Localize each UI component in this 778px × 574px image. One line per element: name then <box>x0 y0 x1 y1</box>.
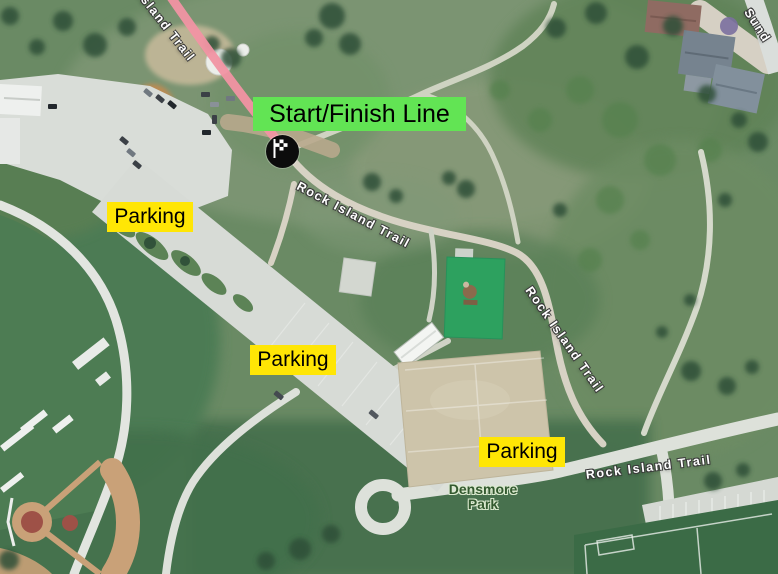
concrete-pad <box>339 258 375 296</box>
park-name-line1: Densmore <box>438 482 528 497</box>
park-name-label: Densmore Park <box>438 482 528 512</box>
parking-label-central: Parking <box>250 345 336 375</box>
map-canvas[interactable]: Rock Island Trail Rock Island Trail Rock… <box>0 0 778 574</box>
parking-label-north: Parking <box>107 202 193 232</box>
satellite-imagery <box>0 0 778 574</box>
park-name-line2: Park <box>438 497 528 512</box>
parking-label-south: Parking <box>479 437 565 467</box>
checkered-flag-icon <box>266 135 293 162</box>
basketball-court <box>444 248 505 339</box>
finish-flag-marker <box>266 135 299 168</box>
start-finish-label: Start/Finish Line <box>253 97 466 131</box>
